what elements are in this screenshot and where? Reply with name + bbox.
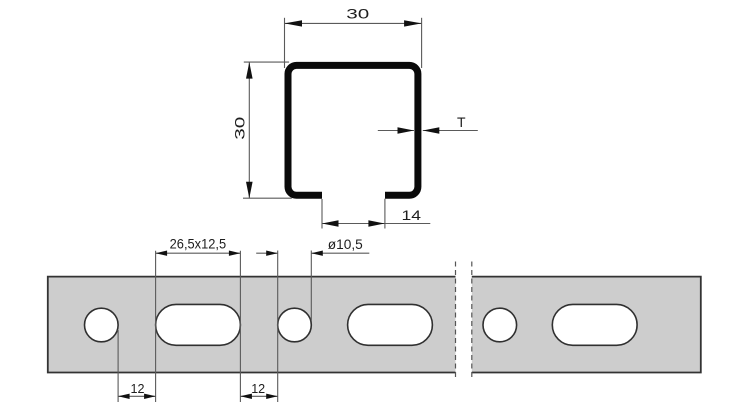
svg-text:30: 30	[232, 116, 248, 139]
svg-text:ø10,5: ø10,5	[328, 236, 363, 252]
svg-text:T: T	[457, 114, 466, 130]
svg-text:30: 30	[346, 5, 369, 21]
svg-text:12: 12	[251, 381, 265, 396]
svg-text:26,5x12,5: 26,5x12,5	[170, 236, 227, 252]
svg-text:14: 14	[402, 207, 422, 223]
svg-text:12: 12	[131, 381, 145, 396]
